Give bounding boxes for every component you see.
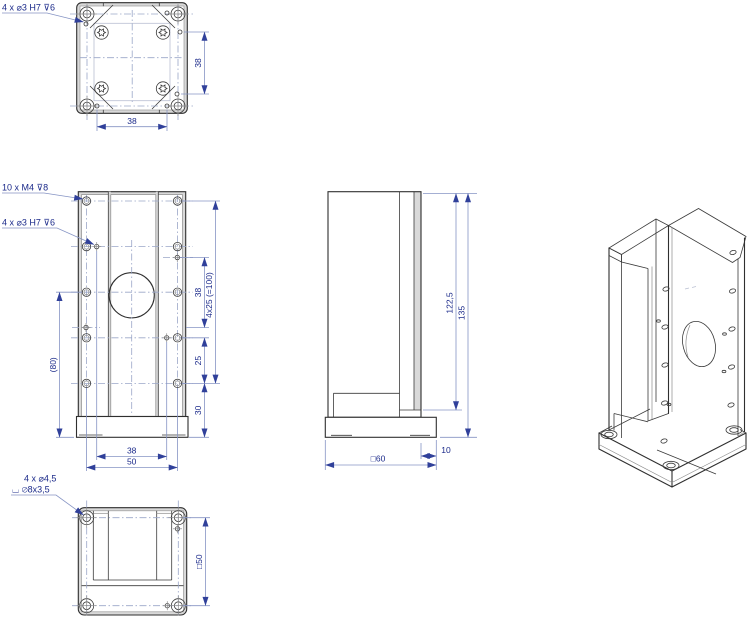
isometric-view (599, 209, 746, 488)
dim-38-horizontal-top: 38 (127, 116, 137, 126)
front-view: 10 x M4 ⊽8 4 x ⌀3 H7 ⊽6 38 4x25 (=100) 2… (2, 183, 220, 472)
callout-dowel-holes-front: 4 x ⌀3 H7 ⊽6 (2, 218, 55, 228)
dim-80-ref: (80) (48, 357, 58, 372)
dim-50-square: □50 (194, 554, 204, 569)
dim-10: 10 (441, 445, 451, 455)
dim-50-holes: 50 (127, 457, 137, 467)
dim-38-dowel-vertical: 38 (193, 288, 203, 298)
callout-base-holes-line1: 4 x ⌀4,5 (24, 474, 56, 484)
dim-25: 25 (193, 356, 203, 366)
top-view: 38 38 4 x ⌀3 H7 ⊽6 (2, 3, 209, 132)
dim-38-vertical-top: 38 (193, 58, 203, 68)
dim-38-dowel-horizontal: 38 (127, 446, 137, 456)
bottom-view: □50 4 x ⌀4,5 ⌴ ⌀8x3,5 (11, 474, 210, 618)
dim-122-5: 122,5 (445, 292, 455, 314)
callout-m4-holes: 10 x M4 ⊽8 (2, 183, 48, 193)
dim-hole-pattern: 4x25 (=100) (204, 272, 214, 318)
side-view: 122,5 135 □60 10 (325, 192, 477, 470)
technical-drawing-canvas: 38 38 4 x ⌀3 H7 ⊽6 (0, 0, 750, 618)
dim-30: 30 (193, 405, 203, 415)
dim-base-60: □60 (371, 454, 386, 464)
callout-base-holes-line2: ⌴ ⌀8x3,5 (12, 485, 50, 495)
callout-dowel-holes-top: 4 x ⌀3 H7 ⊽6 (2, 3, 55, 13)
iso-body (609, 209, 746, 475)
iso-central-bore (678, 318, 721, 371)
drawing-sheet: 38 38 4 x ⌀3 H7 ⊽6 (0, 0, 750, 618)
dim-135: 135 (457, 306, 467, 320)
